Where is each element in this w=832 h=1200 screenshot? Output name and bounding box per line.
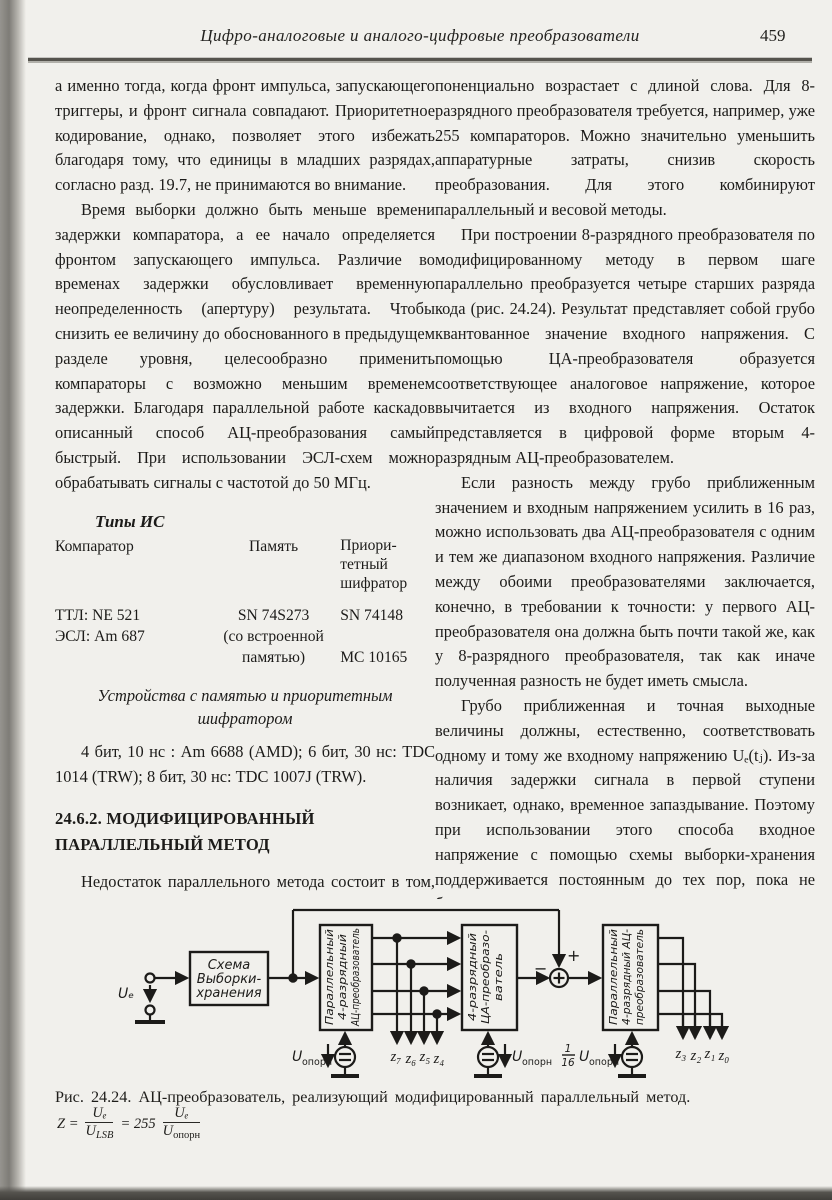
dac-label: 4-разрядный ЦА-преобразо- ватель <box>466 930 505 1024</box>
table-header: Память <box>209 536 338 593</box>
svg-text:Параллельный: Параллельный <box>607 929 620 1025</box>
svg-text:z₂: z₂ <box>690 1048 702 1064</box>
figure-caption: Рис. 24.24. АЦ-преобразователь, реализую… <box>55 1088 800 1107</box>
svg-text:U: U <box>292 1049 302 1065</box>
vref-source-3 <box>562 1033 646 1076</box>
summing-junction <box>550 969 568 987</box>
paragraph: Если разность между грубо приближенным з… <box>435 471 815 694</box>
svg-text:U: U <box>512 1049 522 1065</box>
paragraph: Грубо приближенная и точная выходные вел… <box>435 694 815 899</box>
formula-fraction-1: Uₑ ULSB <box>85 1106 113 1143</box>
table-cell: ЭСЛ: Am 687 <box>55 626 207 668</box>
svg-text:4-разрядный: 4-разрядный <box>336 934 349 1020</box>
adc1-label: Параллельный 4-разрядный АЦ-преобразоват… <box>323 928 362 1027</box>
table-cell: ТТЛ: NE 521 <box>55 605 207 626</box>
svg-text:Параллельный: Параллельный <box>323 929 336 1025</box>
plus-sign: + <box>567 946 580 965</box>
table-cell: SN 74148 <box>340 605 435 626</box>
paragraph: а именно тогда, когда фронт импульса, за… <box>55 74 435 198</box>
table-cell: SN 74S273 <box>209 605 338 626</box>
vref3-label: 1 16 U опорн <box>561 1043 619 1069</box>
svg-text:16: 16 <box>561 1057 575 1069</box>
svg-text:z₁: z₁ <box>704 1046 716 1062</box>
vref2-label: U опорн <box>512 1049 552 1068</box>
sample-hold-label: Схема Выборки- хранения <box>195 958 261 1001</box>
scan-bottom-edge <box>0 1186 832 1200</box>
svg-text:ватель: ватель <box>492 953 505 1001</box>
header-rule <box>28 58 812 61</box>
svg-text:z₅: z₅ <box>419 1049 431 1065</box>
minus-sign: − <box>534 959 547 978</box>
memory-devices-heading: Устройства с памятью и приоритетным шифр… <box>61 684 429 730</box>
svg-text:4-разрядный АЦ-: 4-разрядный АЦ- <box>620 929 633 1025</box>
figure-formula: Z = Uₑ ULSB = 255 Uₑ Uопорн <box>57 1106 200 1143</box>
input-terminal <box>135 974 187 1023</box>
svg-text:z₄: z₄ <box>433 1051 445 1067</box>
scan-left-edge <box>0 0 26 1200</box>
svg-text:1: 1 <box>565 1043 572 1055</box>
table-header: Компаратор <box>55 536 207 593</box>
section-heading: 24.6.2. МОДИФИЦИРОВАННЫЙ ПАРАЛЛЕЛЬНЫЙ МЕ… <box>55 806 435 858</box>
paragraph: Время выборки должно быть меньше времени… <box>55 198 435 496</box>
bit-bus-low <box>658 938 722 1038</box>
svg-text:z₆: z₆ <box>405 1051 417 1067</box>
ic-types-table: Компаратор Память Приори- тетный шифрато… <box>55 536 435 668</box>
input-voltage-label: Uₑ <box>118 986 134 1002</box>
wire-sh-to-adc1 <box>268 910 559 982</box>
right-column: поненциально возрастает с длиной слова. … <box>435 74 815 899</box>
circuit-diagram: Uₑ Схема Выборки- хранения Параллельный … <box>40 895 832 1095</box>
svg-text:4-разрядный: 4-разрядный <box>466 933 479 1021</box>
svg-text:преобразователь: преобразователь <box>633 929 646 1025</box>
vref-source-1 <box>328 1033 359 1076</box>
svg-text:опорн: опорн <box>302 1057 332 1068</box>
svg-text:ЦА-преобразо-: ЦА-преобразо- <box>479 930 492 1024</box>
paragraph: 4 бит, 10 нс : Am 6688 (AMD); 6 бит, 30 … <box>55 740 435 790</box>
paragraph: поненциально возрастает с длиной слова. … <box>435 74 815 223</box>
svg-text:опорн: опорн <box>522 1057 552 1068</box>
bit-labels-high: z₇ z₆ z₅ z₄ <box>390 1049 445 1067</box>
adc2-label: Параллельный 4-разрядный АЦ- преобразова… <box>607 929 646 1025</box>
vref1-label: U опорн <box>292 1049 332 1068</box>
book-page-scan: Цифро-аналоговые и аналого-цифровые прео… <box>0 0 832 1200</box>
table-cell: MC 10165 <box>340 647 435 668</box>
left-column: а именно тогда, когда фронт импульса, за… <box>55 74 435 899</box>
formula-mid: = 255 <box>120 1116 155 1133</box>
ic-types-title: Типы ИС <box>95 510 435 535</box>
table-header: Приори- тетный шифратор <box>340 536 435 593</box>
svg-text:z₃: z₃ <box>675 1046 687 1062</box>
running-header-title: Цифро-аналоговые и аналого-цифровые прео… <box>120 26 720 46</box>
formula-fraction-2: Uₑ Uопорн <box>163 1106 200 1143</box>
svg-text:опорн: опорн <box>589 1057 619 1068</box>
svg-text:U: U <box>579 1049 589 1065</box>
table-cell: (со встроенной памятью) <box>209 626 338 668</box>
svg-text:хранения: хранения <box>195 986 261 1001</box>
vref-source-2 <box>474 1033 505 1076</box>
bit-bus-high <box>372 934 459 1043</box>
bit-labels-low: z₃ z₂ z₁ z₀ <box>675 1046 730 1064</box>
svg-text:АЦ-преобразователь: АЦ-преобразователь <box>349 928 362 1027</box>
formula-lhs: Z = <box>57 1116 78 1133</box>
svg-text:z₀: z₀ <box>718 1048 730 1064</box>
svg-text:Выборки-: Выборки- <box>197 972 262 987</box>
paragraph: При построении 8-разрядного преобразоват… <box>435 223 815 471</box>
svg-text:z₇: z₇ <box>390 1049 402 1065</box>
page-number: 459 <box>760 26 810 46</box>
svg-text:Схема: Схема <box>208 958 251 973</box>
